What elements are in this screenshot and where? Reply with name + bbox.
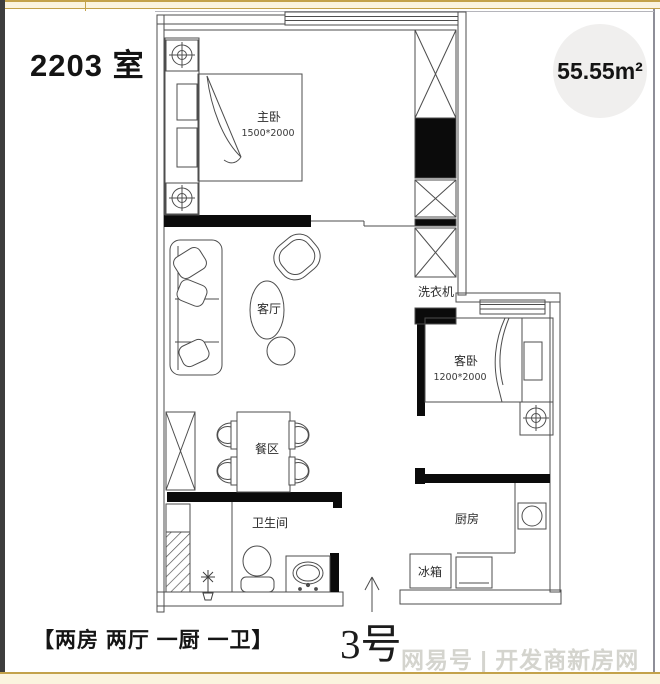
window-master	[285, 12, 458, 25]
sofa	[170, 240, 222, 375]
coffee-table	[250, 281, 295, 365]
dining-cabinet	[166, 412, 195, 490]
wall-right-lower	[550, 302, 560, 592]
wall-dining-bath	[167, 492, 337, 502]
wall-right-upper	[458, 12, 466, 295]
kitchen-label: 厨房	[455, 511, 479, 526]
bathroom-fixtures	[166, 504, 330, 592]
wall-guest-top	[456, 293, 560, 302]
ceiling-lamp-icon	[169, 185, 195, 211]
guest-bedroom-label: 客卧	[454, 353, 478, 368]
fridge-label: 冰箱	[418, 564, 442, 579]
washing-machine-label: 洗衣机	[418, 284, 454, 299]
entry-arrow-icon	[365, 577, 379, 612]
chair-icon	[289, 457, 309, 485]
living-room-label: 客厅	[257, 301, 281, 316]
configuration-text: 【两房 两厅 一厨 一卫】	[33, 624, 274, 654]
wall-sink-side	[330, 553, 339, 592]
master-bedroom-size: 1500*2000	[241, 128, 294, 139]
chair-icon	[289, 421, 309, 449]
plant-icon	[201, 570, 215, 600]
chair-icon	[217, 457, 237, 485]
floorplan-drawing: 主卧 1500*2000 客厅 洗衣机	[0, 0, 660, 684]
wall-top	[157, 15, 285, 24]
building-number: 3号	[340, 610, 402, 670]
floorplan-page: 2203 室 55.55m²	[0, 0, 660, 684]
wardrobe-column	[415, 30, 456, 324]
chair-icon	[217, 421, 237, 449]
wall-guest-left	[417, 322, 425, 416]
wall-guest-kitchen	[415, 474, 550, 483]
bottom-frame-bar	[0, 672, 660, 684]
wall-left	[157, 15, 164, 612]
guest-bedroom-size: 1200*2000	[433, 372, 486, 383]
watermark-text: 网易号 | 开发商新房网	[401, 641, 639, 675]
sliding-door	[311, 221, 415, 226]
wall-bath-cap	[333, 492, 342, 508]
wall-master-living	[164, 215, 311, 227]
bathroom-label: 卫生间	[252, 516, 288, 530]
ceiling-lamp-icon	[169, 42, 195, 68]
master-bedroom-label: 主卧	[257, 110, 281, 124]
ceiling-lamp-icon	[523, 405, 549, 431]
dining-area-label: 餐区	[255, 441, 279, 456]
armchair	[267, 228, 326, 287]
slab-bathroom	[157, 592, 343, 606]
slab-kitchen	[400, 590, 561, 604]
